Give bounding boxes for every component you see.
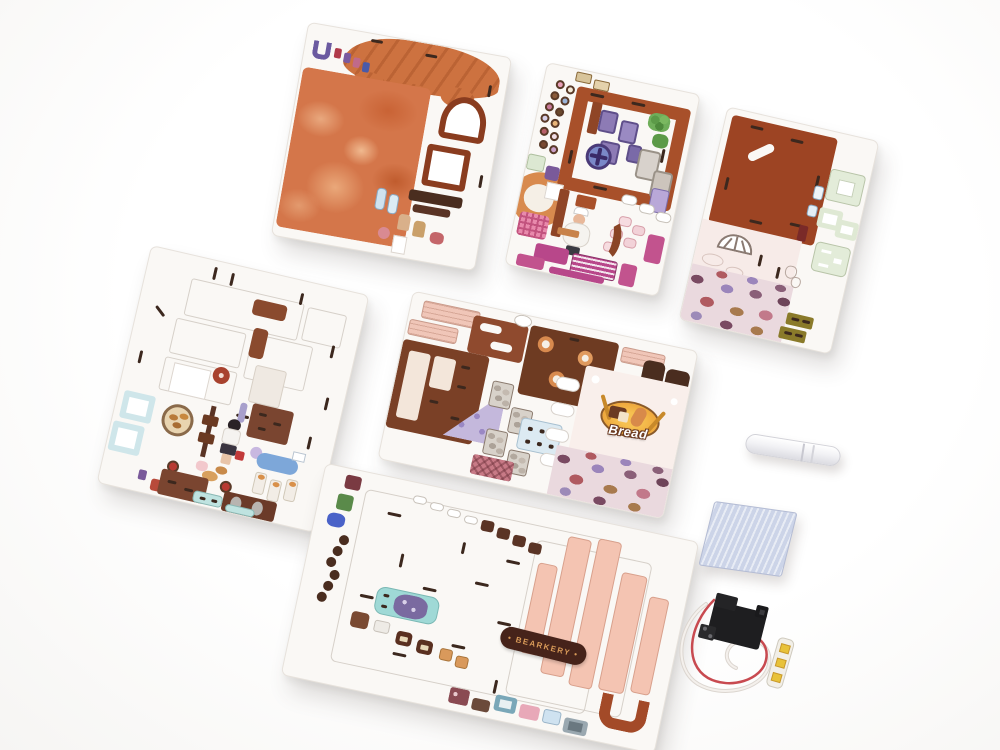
cut-slot: [478, 175, 483, 188]
led-battery-module: [664, 576, 814, 706]
donut-sticker: [550, 118, 561, 129]
cut-slot: [184, 488, 193, 493]
purple-bit-sticker: [137, 469, 147, 481]
donut-sticker: [538, 139, 549, 150]
cut-slot: [784, 331, 792, 336]
donut-sticker: [539, 126, 550, 137]
cut-slot: [212, 267, 218, 280]
bread-dot: [289, 481, 297, 487]
label-piece: [655, 211, 673, 224]
teal-frame-sticker: [493, 694, 518, 714]
maroon-pattern-sticker: [448, 687, 471, 707]
cut-slot: [273, 422, 281, 427]
cut-slot: [383, 594, 389, 598]
brown-bead-piece: [322, 580, 334, 592]
cut-slot: [167, 480, 176, 485]
donut-sticker: [548, 144, 559, 155]
oval-cut-hole: [549, 401, 575, 419]
kit-sheet-top-middle: [504, 62, 701, 297]
magenta-plank-piece: [643, 234, 665, 265]
brown-bead-piece: [332, 545, 344, 557]
oval-cut-hole: [747, 142, 776, 162]
donut-sticker: [565, 85, 576, 96]
frame-inner: [499, 699, 512, 709]
brown-bead-piece: [329, 569, 341, 581]
ring-hole: [218, 373, 224, 379]
donut-sticker: [540, 113, 551, 124]
cut-slot: [790, 138, 803, 144]
frame-inner: [567, 721, 583, 733]
jar-label: [399, 636, 408, 643]
cut-slot: [795, 333, 803, 338]
cut-slot: [525, 439, 531, 444]
sienna-frame-piece: [556, 86, 691, 212]
green-sticker: [335, 493, 354, 512]
olive-piece: [778, 326, 807, 344]
donut-sticker: [550, 90, 561, 101]
cut-slot: [229, 273, 235, 286]
cutout-hole: [391, 235, 408, 255]
blue-sticker: [326, 511, 347, 528]
mint-frame-piece: [834, 219, 859, 241]
bread-dot: [169, 413, 179, 421]
cut-slot: [775, 267, 781, 279]
donut-sticker: [555, 79, 566, 90]
product-photo-scene: Bread: [0, 0, 1000, 750]
cutout-hole: [836, 179, 856, 197]
figure-sticker: [397, 213, 412, 231]
cut-slot: [821, 249, 831, 254]
lounging-figure-sticker: [243, 439, 307, 485]
cut-slot: [757, 254, 763, 266]
glue-stick: [744, 433, 842, 468]
mocha-sign-piece: [349, 610, 370, 629]
cut-slot: [429, 399, 438, 404]
cake-sticker: [631, 224, 646, 236]
cut-slot: [750, 125, 763, 131]
cut-slot: [724, 177, 730, 190]
cut-slot: [527, 426, 533, 431]
oval-cut-hole: [490, 341, 513, 353]
tag-sticker: [575, 71, 593, 84]
cut-slot: [457, 385, 466, 390]
donut-sticker: [549, 131, 560, 142]
purple-u-bracket-piece: [311, 40, 332, 61]
cut-slot: [211, 499, 218, 503]
cut-slot: [137, 350, 143, 363]
snow-speck: [591, 375, 600, 384]
bread-basket-sign-sticker: [158, 401, 196, 439]
brown-square-piece: [480, 519, 495, 532]
glue-stick-seam: [810, 445, 815, 463]
bread-dot: [272, 481, 280, 487]
shelf-panel: [428, 356, 456, 392]
square-window-frame-piece: [421, 143, 472, 192]
brown-bead-piece: [325, 556, 337, 568]
cake-sticker: [622, 237, 637, 249]
sienna-u-piece: [596, 692, 650, 735]
glue-stick-seam: [800, 444, 805, 462]
pink-grid-basket-piece: [516, 211, 550, 241]
maroon-sticker: [344, 474, 363, 491]
teal-table-piece: [192, 490, 224, 508]
mint-piece: [526, 153, 547, 172]
cut-slot: [381, 604, 387, 608]
donut-sticker: [544, 102, 555, 113]
bun-sticker: [429, 231, 445, 245]
mint-square-piece: [824, 168, 866, 207]
cut-slot: [802, 320, 810, 325]
cut-slot: [833, 258, 842, 265]
mint-bracket-piece: [810, 241, 852, 278]
pink-sticker: [518, 704, 540, 722]
brown-bead-piece: [338, 534, 350, 546]
cut-slot: [199, 496, 206, 500]
tan-jar-piece: [454, 655, 469, 669]
blue-frame-sticker: [541, 708, 562, 725]
bread-dot: [257, 474, 265, 480]
cut-slot: [749, 219, 762, 225]
donut-print: [576, 349, 594, 367]
stone-texture-piece: [482, 428, 509, 458]
cut-slot: [461, 365, 470, 370]
cut-slot: [259, 413, 267, 418]
brown-square-piece: [512, 534, 527, 547]
sanding-sponge: [698, 501, 797, 577]
cut-slot: [329, 345, 335, 358]
sign-board: [197, 432, 215, 445]
brown-square-piece: [527, 542, 542, 555]
bread-bag-sticker: [266, 479, 283, 503]
snow-speck: [670, 398, 678, 406]
cut-slot: [791, 317, 799, 322]
jar-piece: [415, 639, 434, 656]
cut-slot: [324, 397, 330, 410]
donut-sticker: [560, 96, 571, 107]
jar-piece: [395, 630, 414, 647]
purple-pot-sticker: [544, 165, 561, 182]
small-sticker-piece: [334, 48, 343, 59]
pastry-print: [392, 592, 430, 622]
battery-box: [698, 591, 770, 653]
blue-window-frame-sticker: [107, 420, 145, 456]
figure-sticker: [412, 220, 427, 238]
shelf-panel: [395, 350, 431, 421]
cut-slot: [155, 305, 165, 317]
cut-slot: [258, 427, 266, 432]
kit-sheet-top-right: [678, 106, 879, 354]
cut-slot: [450, 416, 459, 421]
bread-dot: [179, 413, 189, 421]
gray-frame-sticker: [562, 717, 589, 737]
stone-texture-piece: [488, 380, 515, 410]
brown-bead-piece: [316, 591, 328, 603]
brown-sticker: [471, 697, 491, 712]
cut-slot: [569, 337, 579, 342]
girl-legs: [220, 453, 232, 465]
oval-cut-hole: [544, 426, 570, 444]
magenta-plank-piece: [618, 263, 638, 288]
jar-label: [420, 644, 429, 651]
bread-logo: Bread: [589, 392, 669, 452]
cut-outline: [301, 307, 348, 349]
tan-jar-piece: [438, 648, 453, 662]
donut-print: [536, 335, 555, 354]
girl-bag: [234, 450, 245, 461]
kit-sheet-top-left: [271, 22, 513, 272]
sign-board: [201, 414, 219, 427]
cut-slot: [818, 263, 828, 268]
blue-window-frame-sticker: [119, 390, 156, 424]
donut-sticker: [554, 107, 565, 118]
brown-square-piece: [496, 527, 511, 540]
oval-cut-hole: [479, 322, 502, 334]
cut-slot: [306, 436, 312, 449]
bread-dot: [172, 421, 182, 429]
cream-panel-piece: [248, 365, 288, 409]
